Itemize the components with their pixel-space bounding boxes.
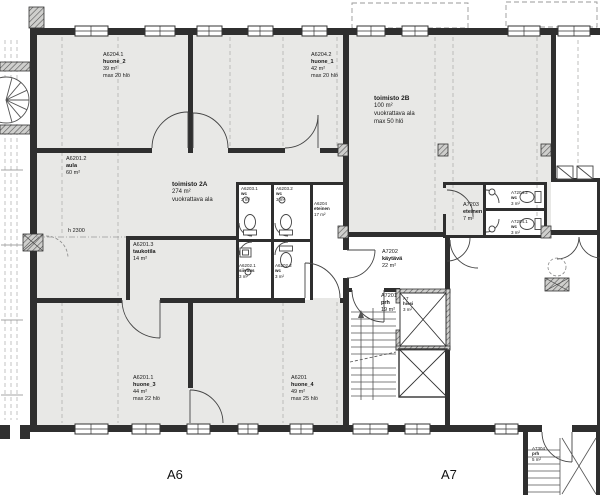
floor-plan-drawing (0, 0, 600, 495)
room-label-kaytava: A7202käytävä 22 m² (382, 249, 402, 270)
roof-overhang-dashed (352, 2, 597, 28)
room-label-prh-a7304: A7304prh 5 m² (532, 446, 545, 462)
room-label-aula: A6201.2aula 60 m² (66, 156, 87, 177)
dashed-fixture-circle (548, 258, 566, 276)
ceiling-height-note: h 2300 (68, 228, 85, 235)
floor-plan: A6204.1huone_2 39 m²max 20 hlö A6204.2hu… (0, 0, 600, 495)
room-label-huone-4: A6201huone_4 49 m²max 25 hlö (291, 375, 318, 404)
room-label-eteinen-a6204: A6204eteinen 17 m² (314, 201, 330, 217)
room-label-eteinen-a7203: A7203eteinen 7 m² (463, 202, 482, 223)
room-label-huone-2: A6204.1huone_2 39 m²max 20 hlö (103, 52, 130, 81)
room-label-wc-a7204-1: A7204.1wc 3 m² (511, 219, 528, 235)
spiral-stair-icon (0, 77, 29, 123)
room-label-toimisto-2a: toimisto 2A274 m² vuokrattava ala (172, 181, 213, 205)
sink-counter (557, 166, 593, 179)
room-label-wc-a6203-2: A6203.2wc 3 m² (276, 186, 293, 202)
room-label-huone-3: A6201.1huone_3 44 m²max 22 hlö (133, 375, 160, 404)
room-label-prh-a7201: A7201prh 19 m² (381, 293, 397, 314)
room-label-taukotila: A6201.3taukotila 14 m² (133, 242, 156, 263)
room-label-wc-a6202-2: A6202.2wc 3 m² (275, 263, 292, 279)
room-label-wc-a7204-2: A7204.2wc 3 m² (511, 190, 528, 206)
room-label-huone-1: A6204.2huone_1 42 m²max 20 hlö (311, 52, 338, 81)
room-label-siivous: A6202.1siivous 3 m² (239, 263, 256, 279)
wing-label-a6: A6 (167, 467, 183, 482)
main-staircase (350, 308, 396, 400)
room-label-toimisto-2b: toimisto 2B100 m² vuokrattava alamax 50 … (374, 95, 415, 127)
room-label-wc-a6203-1: A6203.1wc 3 m² (241, 186, 258, 202)
service-shaft (399, 349, 447, 397)
room-fill-areas (36, 35, 551, 425)
room-label-hissi: A7hissi 3 m² (403, 296, 413, 312)
wing-label-a7: A7 (441, 467, 457, 482)
terrace-ticks (1, 170, 23, 395)
